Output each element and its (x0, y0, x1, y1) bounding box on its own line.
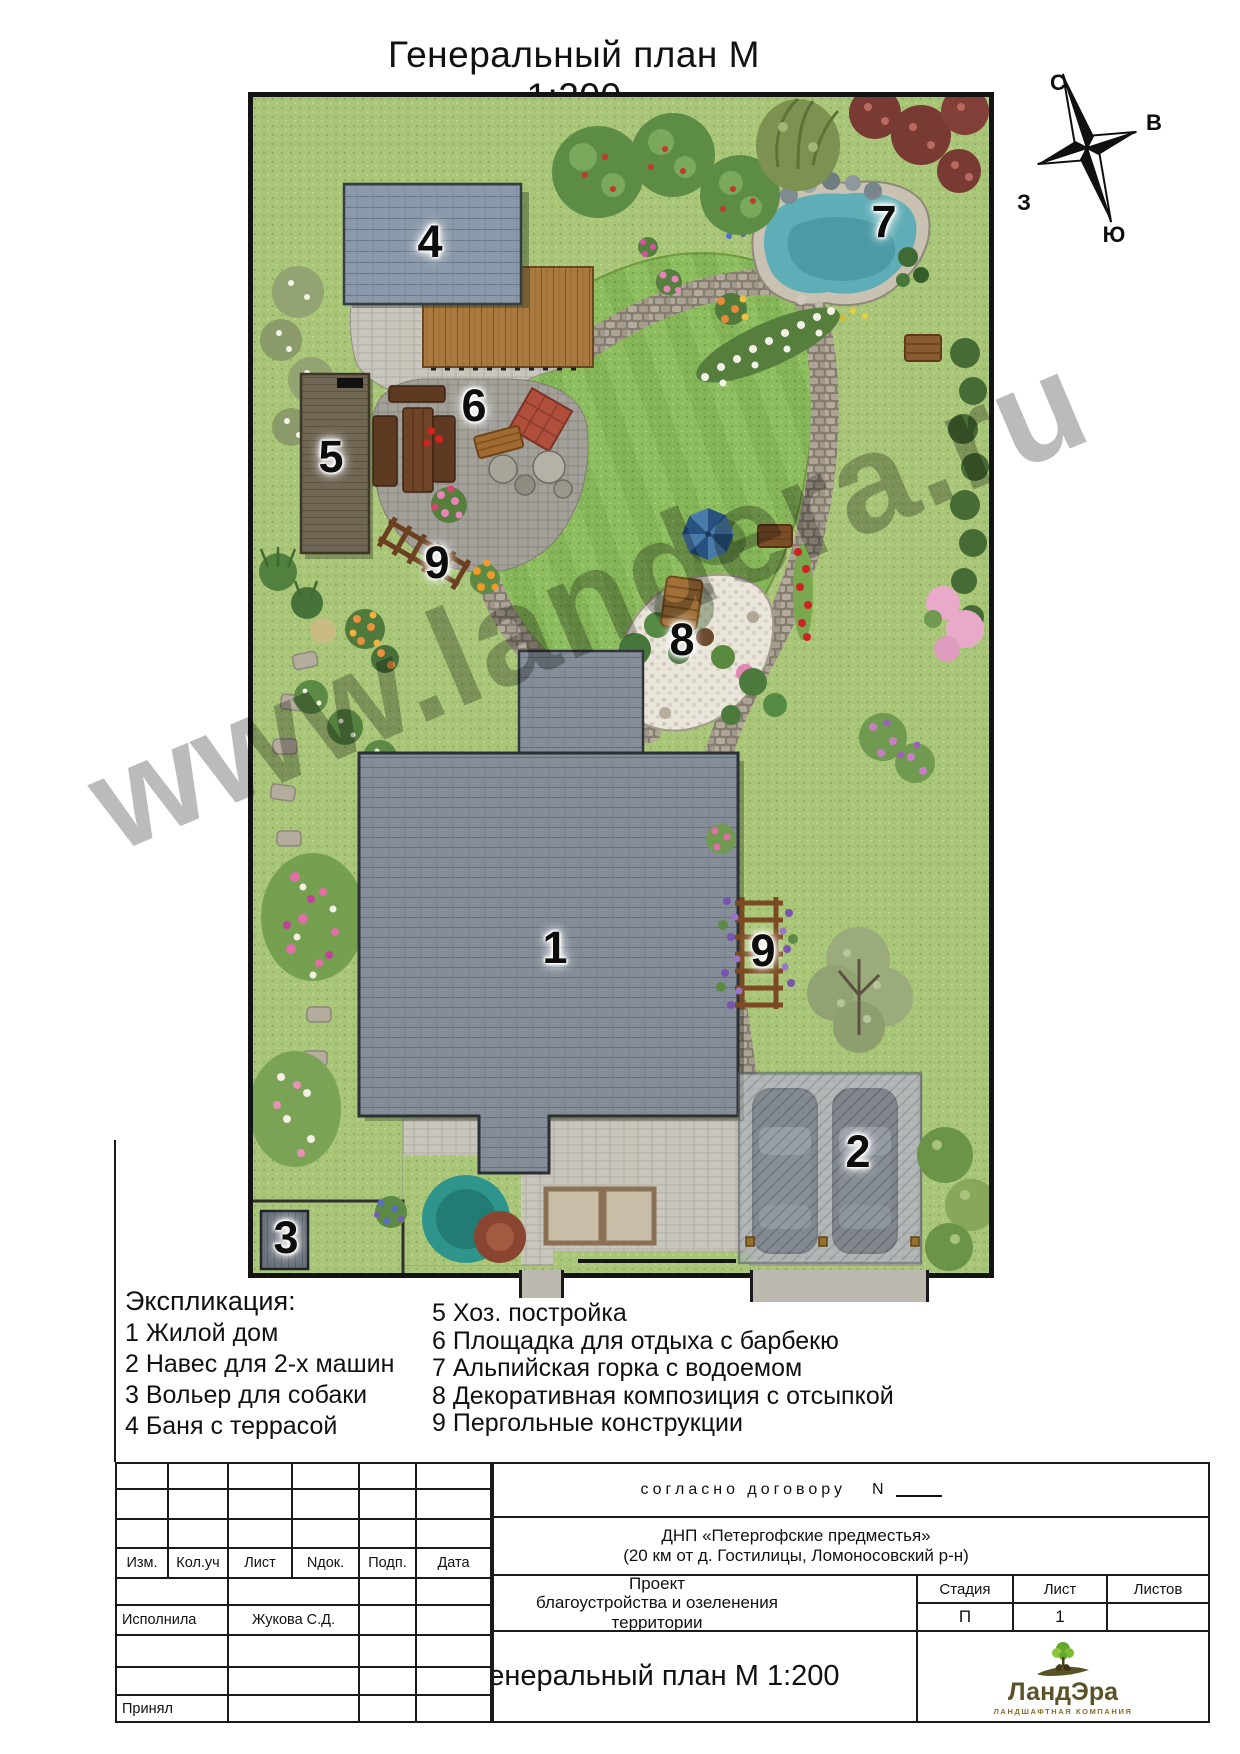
stage-label: Стадия (918, 1576, 1012, 1602)
legend-item: 6 Площадка для отдыха с барбекю (432, 1328, 894, 1356)
label-kennel: 3 (273, 1212, 298, 1264)
site-line2: (20 км от д. Гостилицы, Ломоносовский р-… (623, 1546, 969, 1566)
project-name-cell: Проект благоустройства и озеленения терр… (494, 1576, 916, 1630)
legend-item: 2 Навес для 2-х машин (125, 1349, 394, 1380)
executor-label: Исполнила (117, 1606, 227, 1634)
sheet-frame-line (114, 1140, 116, 1462)
tall-grass (756, 99, 840, 191)
executor-name: Жукова С.Д. (229, 1606, 358, 1634)
label-decor: 8 (669, 614, 694, 666)
compass-west-label: З (1017, 190, 1031, 215)
contract-label: согласно договору (640, 1481, 846, 1499)
gate-walkway (519, 1270, 564, 1298)
pink-roses-top (656, 269, 682, 295)
legend-item: 7 Альпийская горка с водоемом (432, 1355, 894, 1383)
project-line3: территории (612, 1613, 703, 1630)
carport-roof (739, 1073, 921, 1263)
legend-item: 8 Декоративная композиция с отсыпкой (432, 1383, 894, 1411)
site-cell: ДНП «Петергофские предместья» (20 км от … (494, 1518, 1208, 1574)
logo-name: ЛандЭра (1008, 1680, 1118, 1705)
landera-logo-icon (1031, 1640, 1095, 1680)
logo-cell: ЛандЭра ЛАНДШАФТНАЯ КОМПАНИЯ (918, 1632, 1208, 1721)
gate-driveway (750, 1270, 929, 1302)
compass-rose: С В З Ю (1002, 56, 1178, 248)
pink-flower-bed-left (261, 853, 365, 981)
titleblock-revision-grid: Изм. Кол.уч Лист Nдок. Подп. Дата Исполн… (115, 1462, 492, 1723)
contract-cell: согласно договору N (494, 1464, 1208, 1516)
project-line2: благоустройства и озеленения (536, 1593, 778, 1612)
site-plan: 1 2 3 4 5 6 7 8 9 9 (248, 92, 994, 1278)
sheets-label: Листов (1108, 1576, 1208, 1602)
legend-item: 9 Пергольные конструкции (432, 1410, 894, 1438)
site-line1: ДНП «Петергофские предместья» (661, 1526, 930, 1546)
garden-bench (905, 335, 941, 361)
label-house: 1 (542, 922, 567, 974)
titleblock-main: согласно договору N ДНП «Петергофские пр… (492, 1462, 1210, 1723)
contract-number-label: N (872, 1481, 888, 1499)
legend-column-1: 1 Жилой дом 2 Навес для 2-х машин 3 Воль… (125, 1318, 394, 1442)
stage-grid: Стадия Лист Листов П 1 (918, 1576, 1208, 1630)
stage-value: П (918, 1604, 1012, 1630)
label-bbq: 6 (461, 380, 486, 432)
compass-south-label: Ю (1103, 222, 1126, 247)
label-pergola-left: 9 (424, 537, 449, 589)
logo-subtitle: ЛАНДШАФТНАЯ КОМПАНИЯ (994, 1707, 1133, 1716)
lawn-bench (758, 525, 792, 547)
col-koluch: Кол.уч (169, 1549, 227, 1577)
label-shed: 5 (318, 431, 343, 483)
contract-number-line (896, 1483, 942, 1497)
label-sauna: 4 (417, 216, 442, 268)
carport (739, 1073, 921, 1263)
compass-north-label: С (1050, 70, 1066, 95)
legend-item: 4 Баня с террасой (125, 1411, 394, 1442)
legend-heading: Экспликация: (125, 1286, 296, 1317)
label-pergola-right: 9 (750, 925, 775, 977)
label-carport: 2 (845, 1126, 870, 1178)
col-data: Дата (417, 1549, 490, 1577)
sheet-label: Лист (1014, 1576, 1106, 1602)
house-annex-roof (519, 651, 643, 757)
col-podp: Подп. (360, 1549, 415, 1577)
accepted-label: Принял (117, 1696, 227, 1721)
drawing-sheet: Генеральный план М 1:200 С В З Ю (0, 0, 1240, 1754)
legend-item: 5 Хоз. постройка (432, 1300, 894, 1328)
col-ndok: Nдок. (293, 1549, 358, 1577)
site-plan-drawing (253, 97, 989, 1273)
project-line1: Проект (629, 1576, 685, 1593)
compass-east-label: В (1146, 110, 1162, 135)
flower-bed-bottom-left (253, 1051, 341, 1167)
legend-column-2: 5 Хоз. постройка 6 Площадка для отдыха с… (432, 1300, 894, 1438)
col-izm: Изм. (117, 1549, 167, 1577)
sheet-value: 1 (1014, 1604, 1106, 1630)
label-rockery: 7 (871, 196, 896, 248)
sheets-value (1108, 1604, 1208, 1630)
legend-item: 3 Вольер для собаки (125, 1380, 394, 1411)
drawing-title-cell: Генеральный план М 1:200 (494, 1632, 916, 1721)
legend-item: 1 Жилой дом (125, 1318, 394, 1349)
col-list: Лист (229, 1549, 291, 1577)
